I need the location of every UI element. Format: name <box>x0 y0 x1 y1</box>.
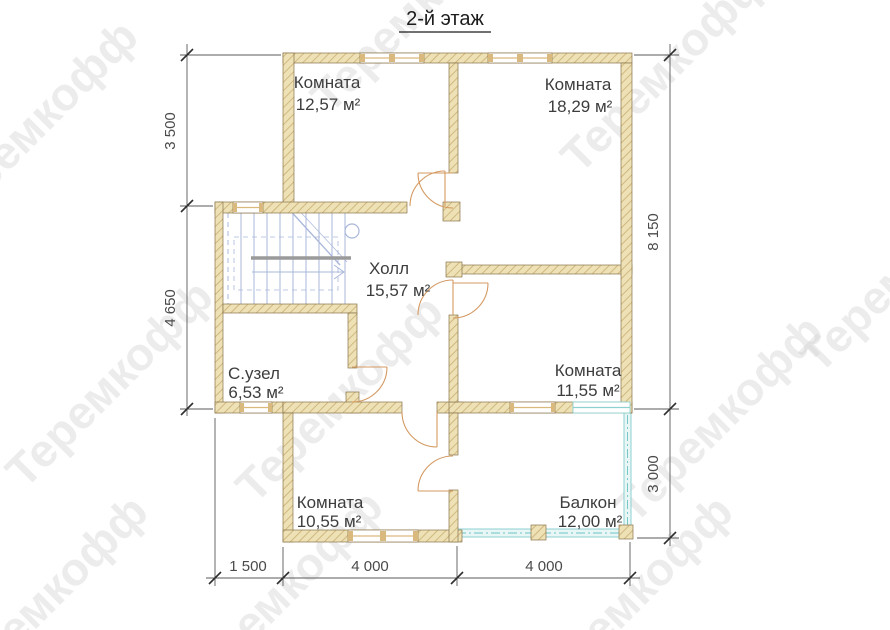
balcony-post <box>531 525 546 540</box>
page-title: 2-й этаж <box>406 8 484 30</box>
wall-top-exterior <box>283 53 632 63</box>
room1-area: 12,57 м² <box>296 95 361 114</box>
wall-suzel-right <box>348 313 357 368</box>
room5-area: 11,55 м² <box>556 381 620 400</box>
plan-title: 2-й этаж <box>399 8 491 32</box>
door-room1 <box>410 171 445 206</box>
window <box>488 53 552 63</box>
hall-area: 15,57 м² <box>366 281 431 300</box>
watermark-text: Теремкофф <box>0 10 148 237</box>
room6-area: 10,55 м² <box>297 512 362 531</box>
dim-right-bottom: 3 000 <box>645 455 662 493</box>
room2-name: Комната <box>545 75 612 94</box>
room1-name: Комната <box>294 73 361 92</box>
room2-area: 18,29 м² <box>548 97 613 116</box>
balcony-door-window <box>573 402 630 413</box>
dim-right-top: 8 150 <box>645 213 662 251</box>
dim-bottom-2: 4 000 <box>351 558 389 575</box>
dim-bottom-3: 4 000 <box>525 558 563 575</box>
wall-belt-mid-left <box>283 402 402 413</box>
window <box>510 402 555 413</box>
dim-bottom-1: 1 500 <box>229 558 267 575</box>
watermark-text: Теремкофф <box>0 485 158 630</box>
wall-stairs-bottom <box>223 304 357 313</box>
stairs-marker-circle <box>345 224 359 238</box>
door-room5 <box>453 283 488 318</box>
door-balcony <box>418 456 453 491</box>
wall-room2-bottom <box>449 265 632 274</box>
room6-name: Комната <box>297 493 364 512</box>
wall-center-upper <box>449 63 458 173</box>
floorplan-page: Теремкофф Теремкофф Теремкофф Теремкофф … <box>0 0 890 630</box>
suzel-area: 6,53 м² <box>228 383 283 402</box>
dim-left-bottom: 4 650 <box>162 289 179 327</box>
wall-right-exterior <box>621 63 632 413</box>
wall-center-mid <box>449 315 458 402</box>
wall-cap <box>446 262 462 277</box>
window <box>233 202 263 213</box>
staircase <box>228 204 359 304</box>
watermark-text: Теремкофф <box>0 270 223 497</box>
wall-room6-left-exterior <box>283 413 293 542</box>
room5-name: Комната <box>555 361 622 380</box>
balcony-area: 12,00 м² <box>558 512 623 531</box>
wall-balcony-divider-lower <box>449 490 458 542</box>
suzel-name: С.узел <box>228 364 280 383</box>
hall-name: Холл <box>369 259 409 278</box>
window <box>348 530 418 542</box>
wall-left-upper-exterior <box>283 53 294 204</box>
window <box>240 402 272 413</box>
wall-annex-left-exterior <box>215 202 223 413</box>
dim-left-top: 3 500 <box>162 112 179 150</box>
wall-balcony-divider-upper <box>449 413 458 455</box>
window <box>360 53 424 63</box>
door-room6 <box>402 412 437 447</box>
watermark-text: Теремкофф <box>790 155 890 382</box>
balcony-name: Балкон <box>559 493 616 512</box>
floorplan-drawing: Теремкофф Теремкофф Теремкофф Теремкофф … <box>0 0 890 630</box>
